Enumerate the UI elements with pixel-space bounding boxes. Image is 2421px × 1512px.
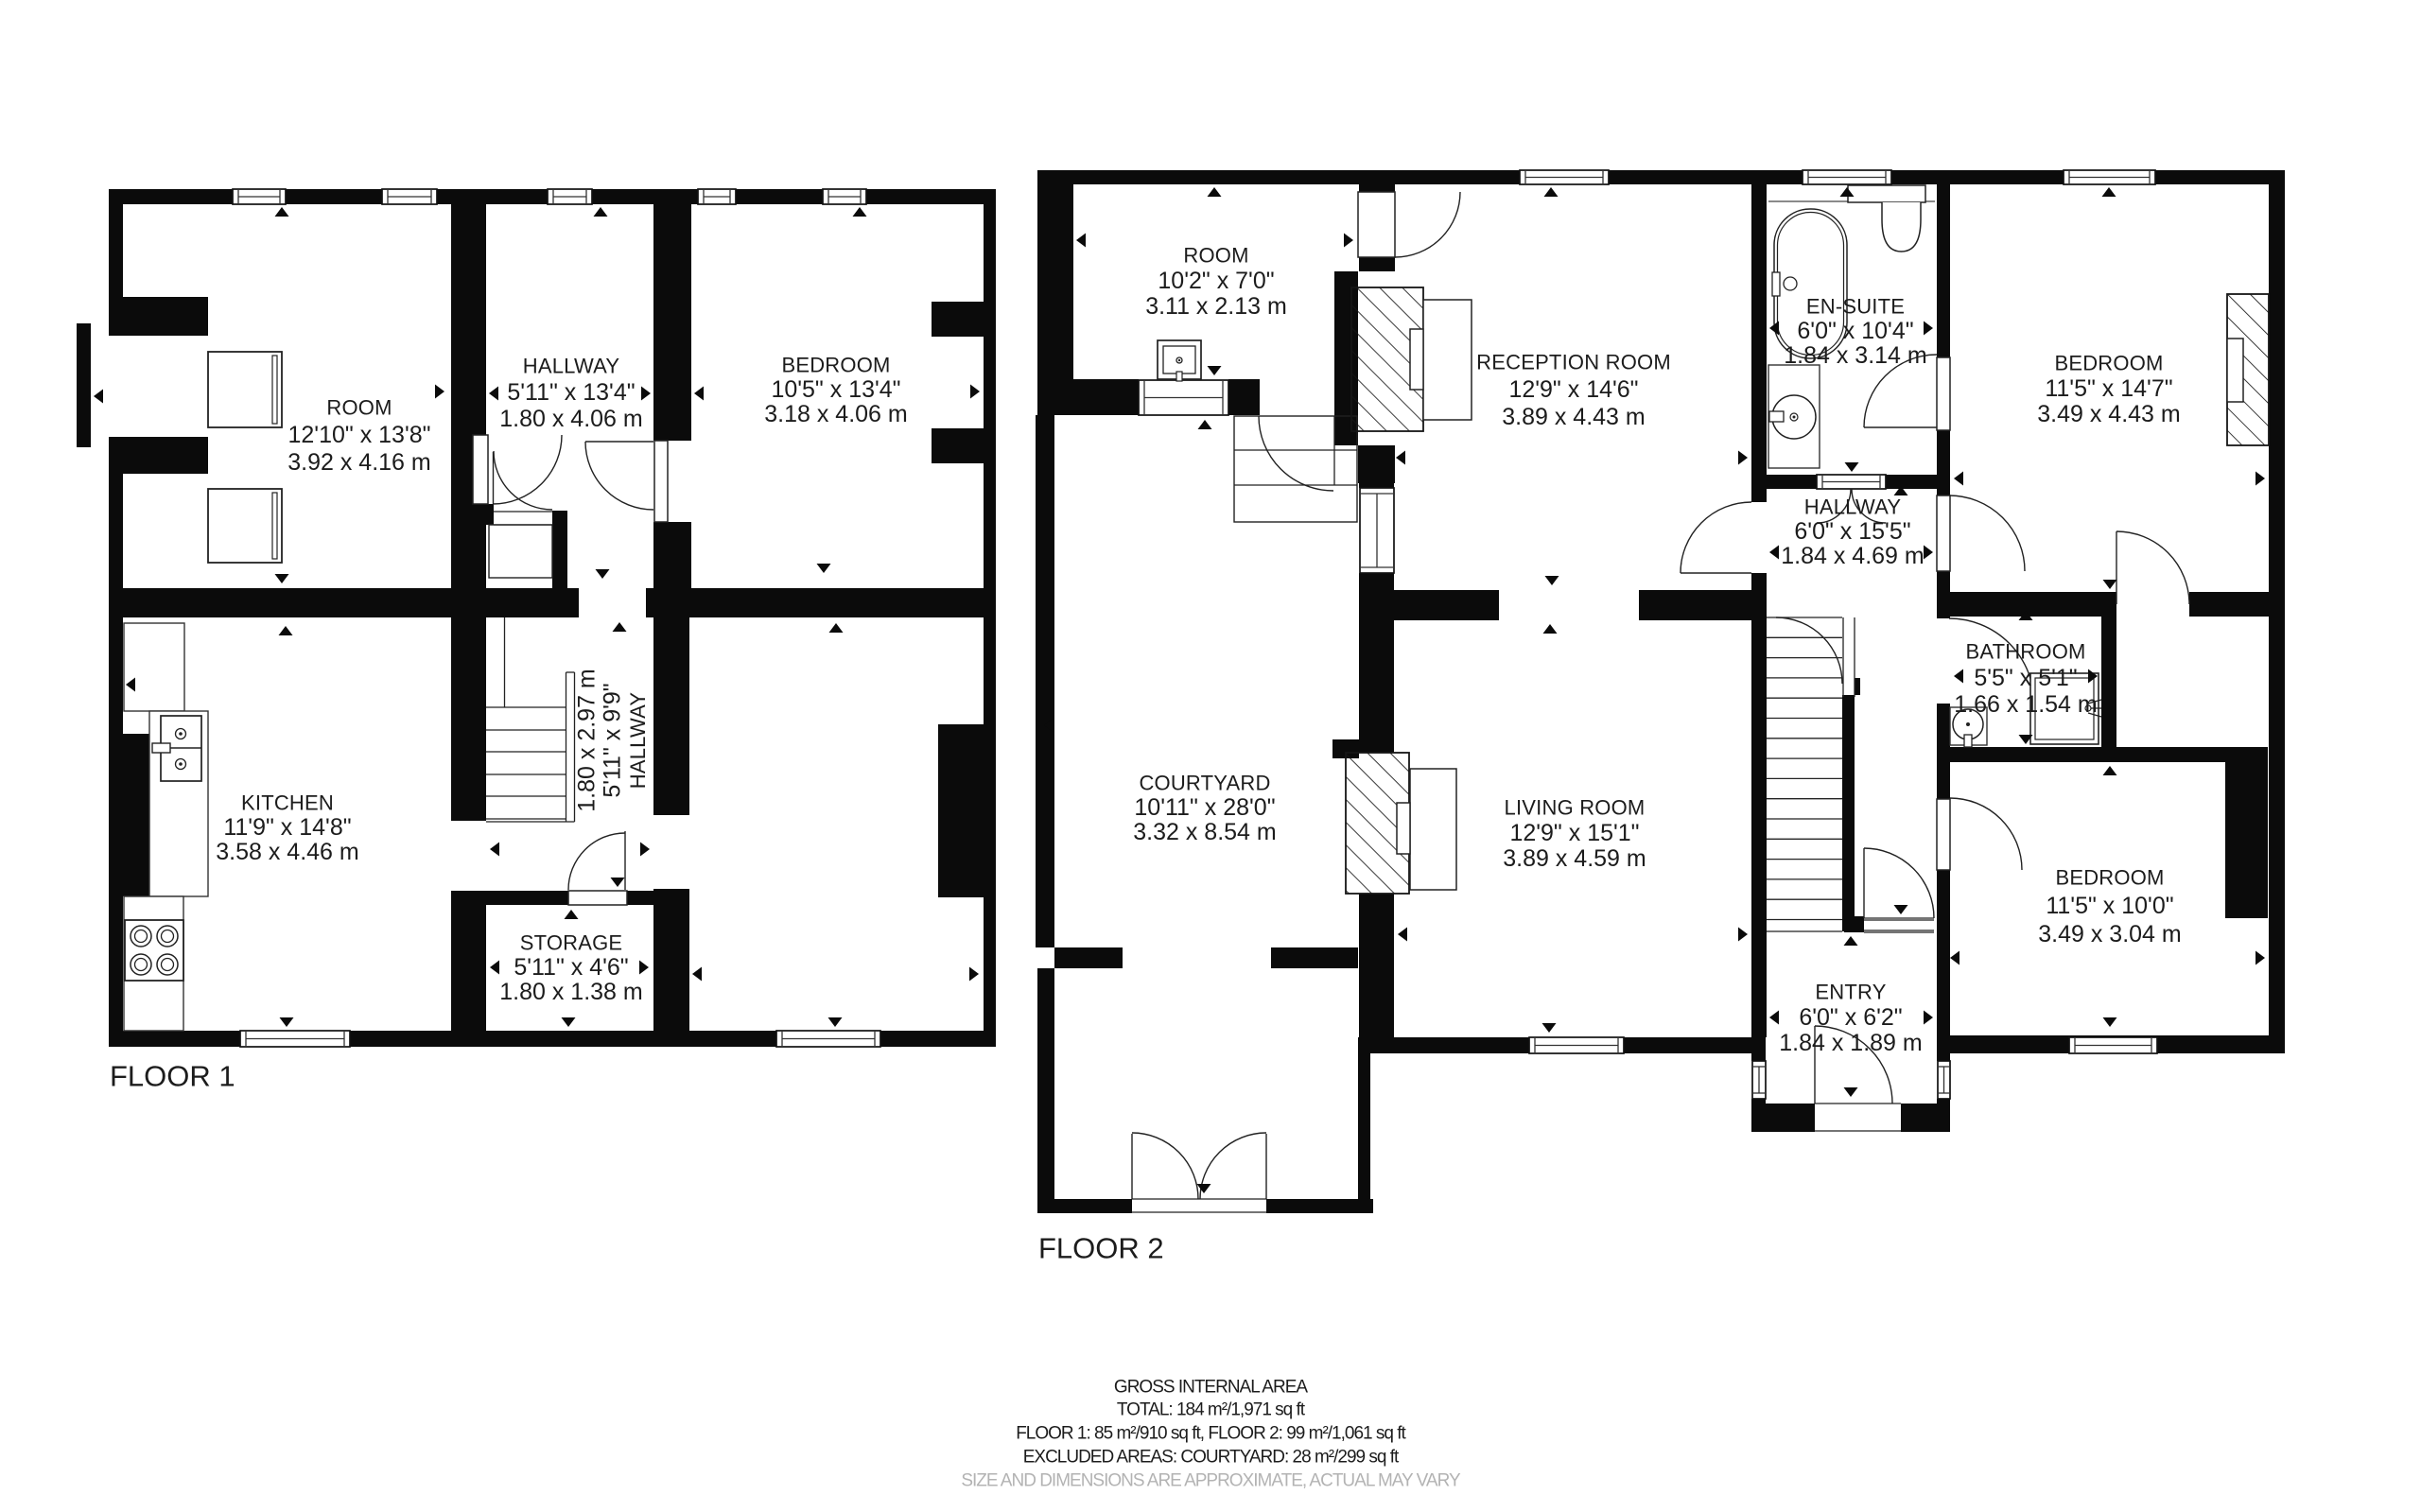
svg-text:GROSS INTERNAL AREA: GROSS INTERNAL AREA (1114, 1378, 1308, 1398)
svg-text:5'11" x 13'4": 5'11" x 13'4" (507, 379, 635, 406)
svg-text:BEDROOM: BEDROOM (2055, 866, 2164, 890)
svg-text:ROOM: ROOM (1183, 244, 1248, 268)
svg-text:3.49 x 3.04 m: 3.49 x 3.04 m (2038, 921, 2181, 947)
svg-text:3.89 x 4.59 m: 3.89 x 4.59 m (1503, 845, 1646, 872)
svg-text:BEDROOM: BEDROOM (2054, 352, 2163, 375)
svg-text:SIZE AND DIMENSIONS ARE APPROX: SIZE AND DIMENSIONS ARE APPROXIMATE, ACT… (961, 1471, 1461, 1491)
svg-text:1.66 x 1.54 m: 1.66 x 1.54 m (1954, 691, 2097, 718)
svg-text:1.80 x 2.97 m: 1.80 x 2.97 m (574, 669, 601, 811)
svg-text:TOTAL: 184 m²/1,971 sq ft: TOTAL: 184 m²/1,971 sq ft (1117, 1400, 1306, 1420)
svg-text:11'9" x 14'8": 11'9" x 14'8" (223, 814, 351, 841)
svg-text:11'5" x 10'0": 11'5" x 10'0" (2046, 893, 2173, 919)
svg-text:6'0" x 10'4": 6'0" x 10'4" (1797, 318, 1913, 344)
svg-text:HALLWAY: HALLWAY (523, 355, 620, 378)
svg-text:EXCLUDED AREAS: COURTYARD: 28: EXCLUDED AREAS: COURTYARD: 28 m²/299 sq … (1023, 1448, 1400, 1468)
svg-text:3.49 x 4.43 m: 3.49 x 4.43 m (2037, 401, 2180, 427)
svg-text:FLOOR 1: FLOOR 1 (110, 1060, 235, 1093)
svg-text:12'9" x 15'1": 12'9" x 15'1" (1509, 820, 1639, 846)
svg-text:RECEPTION ROOM: RECEPTION ROOM (1476, 351, 1671, 374)
svg-text:1.84 x 3.14 m: 1.84 x 3.14 m (1784, 342, 1926, 369)
svg-text:1.84 x 4.69 m: 1.84 x 4.69 m (1781, 543, 1924, 569)
svg-text:1.84 x 1.89 m: 1.84 x 1.89 m (1779, 1030, 1922, 1056)
svg-text:BATHROOM: BATHROOM (1965, 640, 2085, 664)
svg-text:3.58 x 4.46 m: 3.58 x 4.46 m (216, 839, 358, 865)
svg-text:3.32 x 8.54 m: 3.32 x 8.54 m (1133, 819, 1276, 845)
svg-text:1.80 x 4.06 m: 1.80 x 4.06 m (499, 406, 642, 432)
svg-text:BEDROOM: BEDROOM (781, 354, 890, 377)
svg-text:LIVING ROOM: LIVING ROOM (1505, 796, 1646, 820)
svg-text:6'0" x 6'2": 6'0" x 6'2" (1799, 1004, 1902, 1031)
svg-text:3.18 x 4.06 m: 3.18 x 4.06 m (764, 401, 907, 427)
svg-text:FLOOR 1: 85 m²/910 sq ft, FLOO: FLOOR 1: 85 m²/910 sq ft, FLOOR 2: 99 m²… (1016, 1424, 1406, 1444)
svg-text:3.92 x 4.16 m: 3.92 x 4.16 m (287, 449, 430, 476)
svg-text:KITCHEN: KITCHEN (241, 791, 334, 815)
svg-text:3.89 x 4.43 m: 3.89 x 4.43 m (1502, 404, 1645, 430)
svg-text:ENTRY: ENTRY (1815, 981, 1886, 1004)
svg-text:12'10" x 13'8": 12'10" x 13'8" (287, 422, 430, 448)
svg-text:10'2" x 7'0": 10'2" x 7'0" (1158, 268, 1274, 294)
svg-text:10'5" x 13'4": 10'5" x 13'4" (771, 376, 900, 403)
svg-text:COURTYARD: COURTYARD (1139, 772, 1270, 795)
svg-text:HALLWAY: HALLWAY (1804, 495, 1902, 519)
svg-text:5'5" x 5'1": 5'5" x 5'1" (1974, 665, 2077, 691)
svg-text:1.80 x 1.38 m: 1.80 x 1.38 m (499, 979, 642, 1005)
svg-text:FLOOR 2: FLOOR 2 (1038, 1232, 1164, 1265)
svg-text:EN-SUITE: EN-SUITE (1806, 295, 1905, 319)
svg-text:STORAGE: STORAGE (520, 931, 623, 955)
svg-text:11'5" x 14'7": 11'5" x 14'7" (2045, 375, 2172, 402)
svg-text:ROOM: ROOM (326, 396, 392, 420)
svg-text:3.11 x 2.13 m: 3.11 x 2.13 m (1145, 293, 1287, 320)
svg-text:12'9" x 14'6": 12'9" x 14'6" (1508, 376, 1638, 403)
svg-text:10'11" x 28'0": 10'11" x 28'0" (1134, 794, 1275, 821)
svg-text:HALLWAY: HALLWAY (626, 692, 650, 790)
svg-text:6'0" x 15'5": 6'0" x 15'5" (1794, 518, 1910, 545)
svg-text:5'11" x 9'9": 5'11" x 9'9" (600, 683, 626, 797)
svg-text:5'11" x 4'6": 5'11" x 4'6" (514, 954, 628, 981)
